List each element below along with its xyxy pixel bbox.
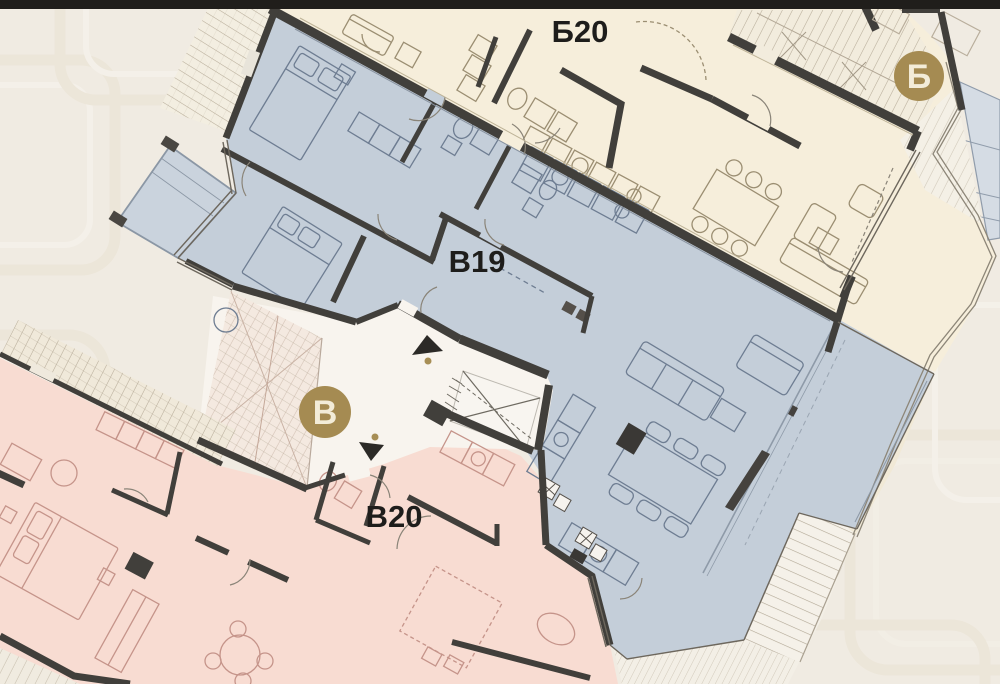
svg-text:Б20: Б20 bbox=[552, 14, 609, 49]
svg-text:В19: В19 bbox=[449, 244, 506, 279]
svg-text:В: В bbox=[313, 394, 338, 432]
svg-text:Б: Б bbox=[907, 58, 931, 96]
svg-text:В20: В20 bbox=[366, 499, 423, 534]
